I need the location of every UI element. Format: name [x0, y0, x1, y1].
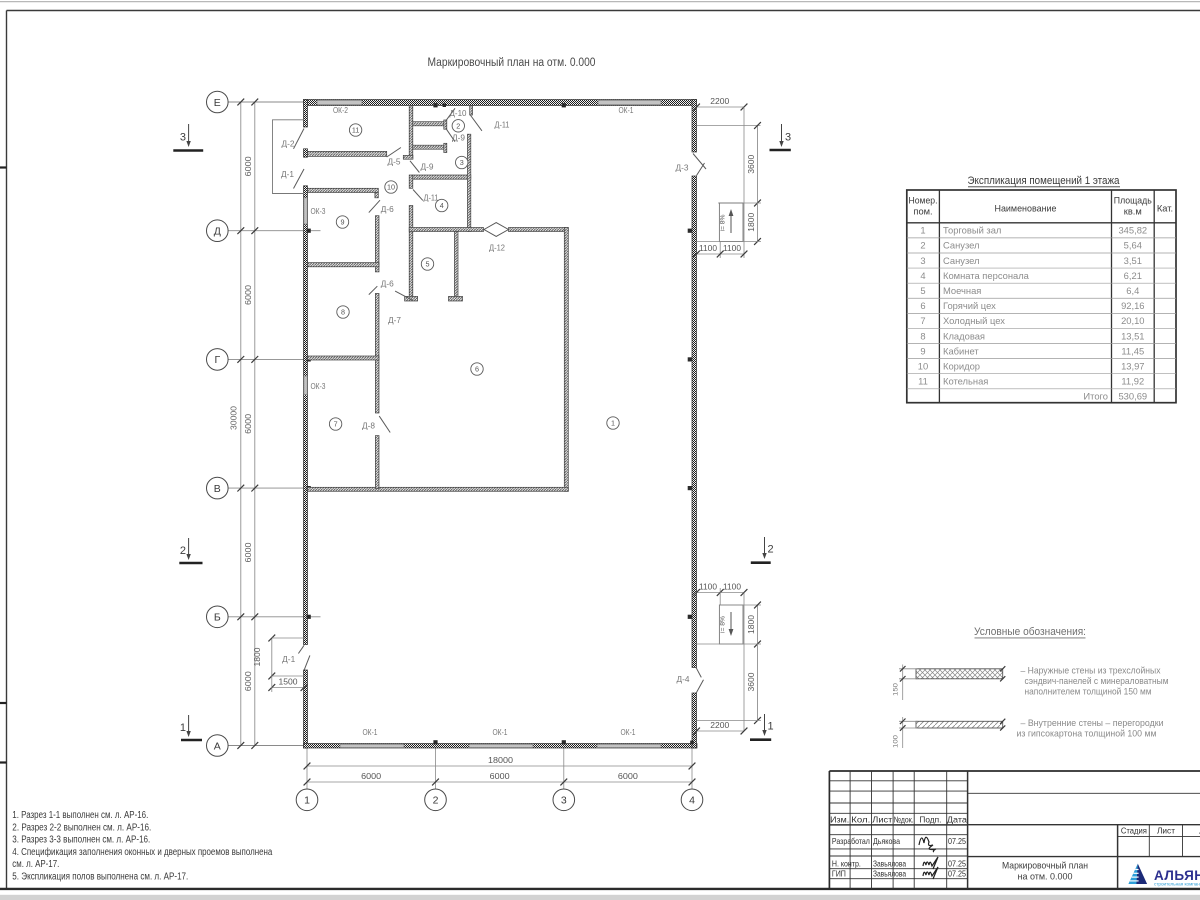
svg-text:1: 1 — [180, 722, 186, 734]
svg-text:1: 1 — [768, 721, 774, 733]
svg-text:5,64: 5,64 — [1124, 240, 1142, 251]
svg-text:30000: 30000 — [230, 406, 239, 430]
svg-text:Кладовая: Кладовая — [943, 330, 985, 341]
svg-text:6: 6 — [920, 300, 925, 311]
svg-text:18000: 18000 — [488, 755, 513, 765]
svg-text:8: 8 — [341, 308, 345, 317]
svg-text:ОК-3: ОК-3 — [311, 207, 326, 216]
svg-text:2: 2 — [768, 544, 774, 556]
svg-text:1: 1 — [920, 225, 925, 236]
svg-text:1100: 1100 — [723, 244, 741, 253]
svg-text:Д-5: Д-5 — [388, 158, 402, 167]
svg-text:1100: 1100 — [723, 583, 741, 592]
svg-text:Д-9: Д-9 — [421, 163, 434, 172]
svg-text:100: 100 — [892, 735, 899, 748]
svg-text:Условные обозначения:: Условные обозначения: — [974, 626, 1086, 638]
svg-text:см. л. АР-17.: см. л. АР-17. — [12, 859, 59, 870]
svg-text:наполнителем толщиной 150 мм: наполнителем толщиной 150 мм — [1025, 687, 1152, 697]
svg-text:Д-11: Д-11 — [424, 194, 439, 203]
svg-text:Разработал: Разработал — [832, 836, 870, 846]
svg-text:Маркировочный план на отм. 0.0: Маркировочный план на отм. 0.000 — [428, 57, 596, 69]
svg-text:2. Разрез 2-2 выполнен см. л.: 2. Разрез 2-2 выполнен см. л. АР-16. — [12, 822, 151, 833]
svg-text:3. Разрез 3-3 выполнен см. л.: 3. Разрез 3-3 выполнен см. л. АР-16. — [12, 835, 150, 846]
svg-text:Б: Б — [214, 612, 221, 624]
svg-text:1100: 1100 — [699, 244, 717, 253]
svg-text:– Внутренние стены – перегород: – Внутренние стены – перегородки — [1021, 718, 1164, 728]
svg-text:А: А — [214, 740, 221, 752]
svg-text:на отм. 0.000: на отм. 0.000 — [1018, 871, 1073, 882]
svg-text:ОК-2: ОК-2 — [333, 106, 348, 115]
svg-text:Д-11: Д-11 — [495, 121, 510, 130]
svg-text:Моечная: Моечная — [943, 285, 981, 296]
svg-text:6000: 6000 — [244, 156, 253, 176]
svg-text:Экспликация помещений 1 этажа: Экспликация помещений 1 этажа — [968, 175, 1121, 187]
svg-text:7: 7 — [920, 315, 925, 326]
svg-text:3: 3 — [920, 255, 925, 266]
svg-text:1: 1 — [611, 419, 615, 428]
svg-text:ОК-1: ОК-1 — [493, 728, 508, 737]
svg-text:3600: 3600 — [747, 154, 756, 173]
svg-text:Дьякова: Дьякова — [873, 836, 900, 846]
svg-text:Д-1: Д-1 — [281, 170, 294, 179]
svg-text:Лист: Лист — [1157, 826, 1175, 836]
svg-text:5: 5 — [920, 285, 925, 296]
svg-text:6000: 6000 — [244, 542, 253, 562]
svg-text:2: 2 — [433, 795, 439, 807]
svg-text:1800: 1800 — [747, 615, 756, 634]
svg-text:Кол.: Кол. — [851, 814, 870, 824]
svg-text:150: 150 — [892, 683, 899, 696]
svg-text:6: 6 — [475, 365, 479, 374]
svg-text:Д-9: Д-9 — [452, 134, 465, 143]
svg-text:Итого: Итого — [1083, 390, 1108, 401]
svg-text:Д-7: Д-7 — [388, 316, 401, 325]
svg-text:i= 8%: i= 8% — [720, 616, 727, 633]
svg-text:Маркировочный план: Маркировочный план — [1002, 860, 1088, 871]
svg-text:13,51: 13,51 — [1121, 330, 1144, 341]
svg-text:8: 8 — [920, 330, 925, 341]
svg-text:Наименование: Наименование — [995, 204, 1057, 215]
svg-text:1: 1 — [304, 795, 310, 807]
svg-text:3,51: 3,51 — [1124, 255, 1142, 266]
svg-text:Комната персонала: Комната персонала — [943, 270, 1030, 281]
svg-text:Котельная: Котельная — [943, 376, 988, 387]
svg-text:2200: 2200 — [710, 721, 729, 730]
svg-text:Д: Д — [214, 225, 221, 237]
svg-text:Д-8: Д-8 — [362, 422, 375, 431]
svg-text:4: 4 — [689, 795, 695, 807]
svg-text:строительная компания: строительная компания — [1154, 881, 1200, 886]
svg-text:Д-6: Д-6 — [381, 280, 394, 289]
svg-text:11: 11 — [352, 126, 359, 135]
svg-text:6000: 6000 — [618, 771, 638, 781]
svg-text:07.25: 07.25 — [948, 869, 966, 879]
svg-text:Д-6: Д-6 — [381, 205, 394, 214]
svg-text:ОК-1: ОК-1 — [619, 106, 634, 115]
svg-text:13,97: 13,97 — [1121, 360, 1144, 371]
svg-text:10: 10 — [918, 360, 928, 371]
svg-text:92,16: 92,16 — [1121, 300, 1144, 311]
svg-text:2200: 2200 — [710, 97, 729, 106]
svg-text:ОК-1: ОК-1 — [621, 728, 636, 737]
svg-text:1800: 1800 — [253, 647, 262, 666]
svg-text:20,10: 20,10 — [1121, 315, 1144, 326]
svg-text:1100: 1100 — [699, 583, 717, 592]
svg-text:Кат.: Кат. — [1157, 204, 1173, 214]
svg-text:345,82: 345,82 — [1118, 225, 1147, 236]
svg-text:Площадь: Площадь — [1114, 196, 1152, 206]
svg-text:3: 3 — [561, 795, 567, 807]
svg-text:11: 11 — [918, 376, 928, 387]
svg-text:Торговый зал: Торговый зал — [943, 225, 1001, 236]
svg-text:4. Спецификация заполнения око: 4. Спецификация заполнения оконных и две… — [12, 846, 272, 858]
svg-text:Подп.: Подп. — [919, 814, 941, 824]
svg-text:530,69: 530,69 — [1118, 390, 1147, 401]
svg-text:кв.м: кв.м — [1124, 207, 1142, 217]
svg-text:4: 4 — [440, 201, 444, 210]
svg-text:1. Разрез 1-1 выполнен см. л.: 1. Разрез 1-1 выполнен см. л. АР-16. — [12, 810, 148, 821]
svg-text:ГИП: ГИП — [832, 869, 846, 879]
svg-text:6000: 6000 — [244, 285, 253, 305]
svg-text:Номер.: Номер. — [909, 196, 938, 206]
svg-text:из гипсокартона толщиной 100 м: из гипсокартона толщиной 100 мм — [1017, 728, 1157, 738]
svg-text:1500: 1500 — [279, 678, 298, 687]
svg-text:Стадия: Стадия — [1121, 826, 1147, 836]
svg-text:Коридор: Коридор — [943, 360, 980, 371]
svg-text:В: В — [214, 483, 221, 495]
svg-text:9: 9 — [920, 345, 925, 356]
svg-text:пом.: пом. — [913, 207, 932, 217]
svg-text:сэндвич-панелей с минераловатн: сэндвич-панелей с минераловатным — [1025, 676, 1169, 686]
svg-text:Д-1: Д-1 — [282, 655, 295, 664]
svg-text:Кабинет: Кабинет — [943, 345, 979, 356]
svg-text:Е: Е — [214, 97, 221, 109]
svg-text:11,92: 11,92 — [1121, 376, 1144, 387]
svg-text:Холодный цех: Холодный цех — [943, 315, 1005, 326]
svg-text:ОК-3: ОК-3 — [311, 382, 326, 391]
svg-text:Н. контр.: Н. контр. — [832, 858, 861, 868]
svg-text:1800: 1800 — [747, 212, 756, 231]
svg-text:6,4: 6,4 — [1126, 285, 1139, 296]
svg-text:Завьялова: Завьялова — [873, 858, 906, 868]
svg-text:2: 2 — [920, 240, 925, 251]
svg-text:3: 3 — [180, 132, 186, 144]
svg-text:2: 2 — [456, 121, 460, 130]
svg-text:Г: Г — [214, 354, 220, 366]
svg-text:6000: 6000 — [361, 771, 381, 781]
svg-text:6,21: 6,21 — [1124, 270, 1142, 281]
svg-text:6000: 6000 — [244, 413, 253, 433]
svg-text:ОК-1: ОК-1 — [363, 728, 378, 737]
svg-text:– Наружные стены из трехслойны: – Наружные стены из трехслойных — [1021, 666, 1161, 676]
svg-text:07.25: 07.25 — [948, 836, 966, 846]
svg-text:5. Экспликация полов выполнена: 5. Экспликация полов выполнена см. л. АР… — [12, 872, 188, 883]
svg-text:5: 5 — [426, 260, 430, 269]
svg-text:3: 3 — [785, 132, 791, 144]
svg-text:Санузел: Санузел — [943, 240, 980, 251]
svg-text:9: 9 — [341, 218, 345, 227]
svg-text:3600: 3600 — [747, 672, 756, 691]
svg-text:Д-10: Д-10 — [450, 109, 468, 118]
svg-text:Д-4: Д-4 — [677, 675, 691, 684]
svg-text:Изм.: Изм. — [830, 814, 849, 824]
svg-text:3: 3 — [460, 158, 464, 167]
svg-text:10: 10 — [387, 183, 395, 192]
svg-text:i= 8%: i= 8% — [720, 214, 727, 231]
svg-text:Лист: Лист — [872, 814, 892, 824]
svg-text:07.25: 07.25 — [948, 858, 966, 868]
svg-text:№док.: №док. — [894, 814, 914, 824]
svg-text:6000: 6000 — [244, 671, 253, 691]
svg-text:Дата: Дата — [947, 814, 967, 824]
svg-text:Завьялова: Завьялова — [873, 869, 906, 879]
svg-text:6000: 6000 — [490, 771, 510, 781]
svg-text:Д-3: Д-3 — [676, 164, 689, 173]
svg-text:7: 7 — [334, 420, 338, 429]
svg-text:Д-12: Д-12 — [489, 244, 505, 253]
svg-text:2: 2 — [180, 545, 186, 557]
svg-text:11,45: 11,45 — [1121, 345, 1144, 356]
svg-text:Д-2: Д-2 — [282, 140, 295, 149]
svg-text:4: 4 — [920, 270, 925, 281]
svg-text:Санузел: Санузел — [943, 255, 980, 266]
svg-text:Горячий цех: Горячий цех — [943, 300, 996, 311]
